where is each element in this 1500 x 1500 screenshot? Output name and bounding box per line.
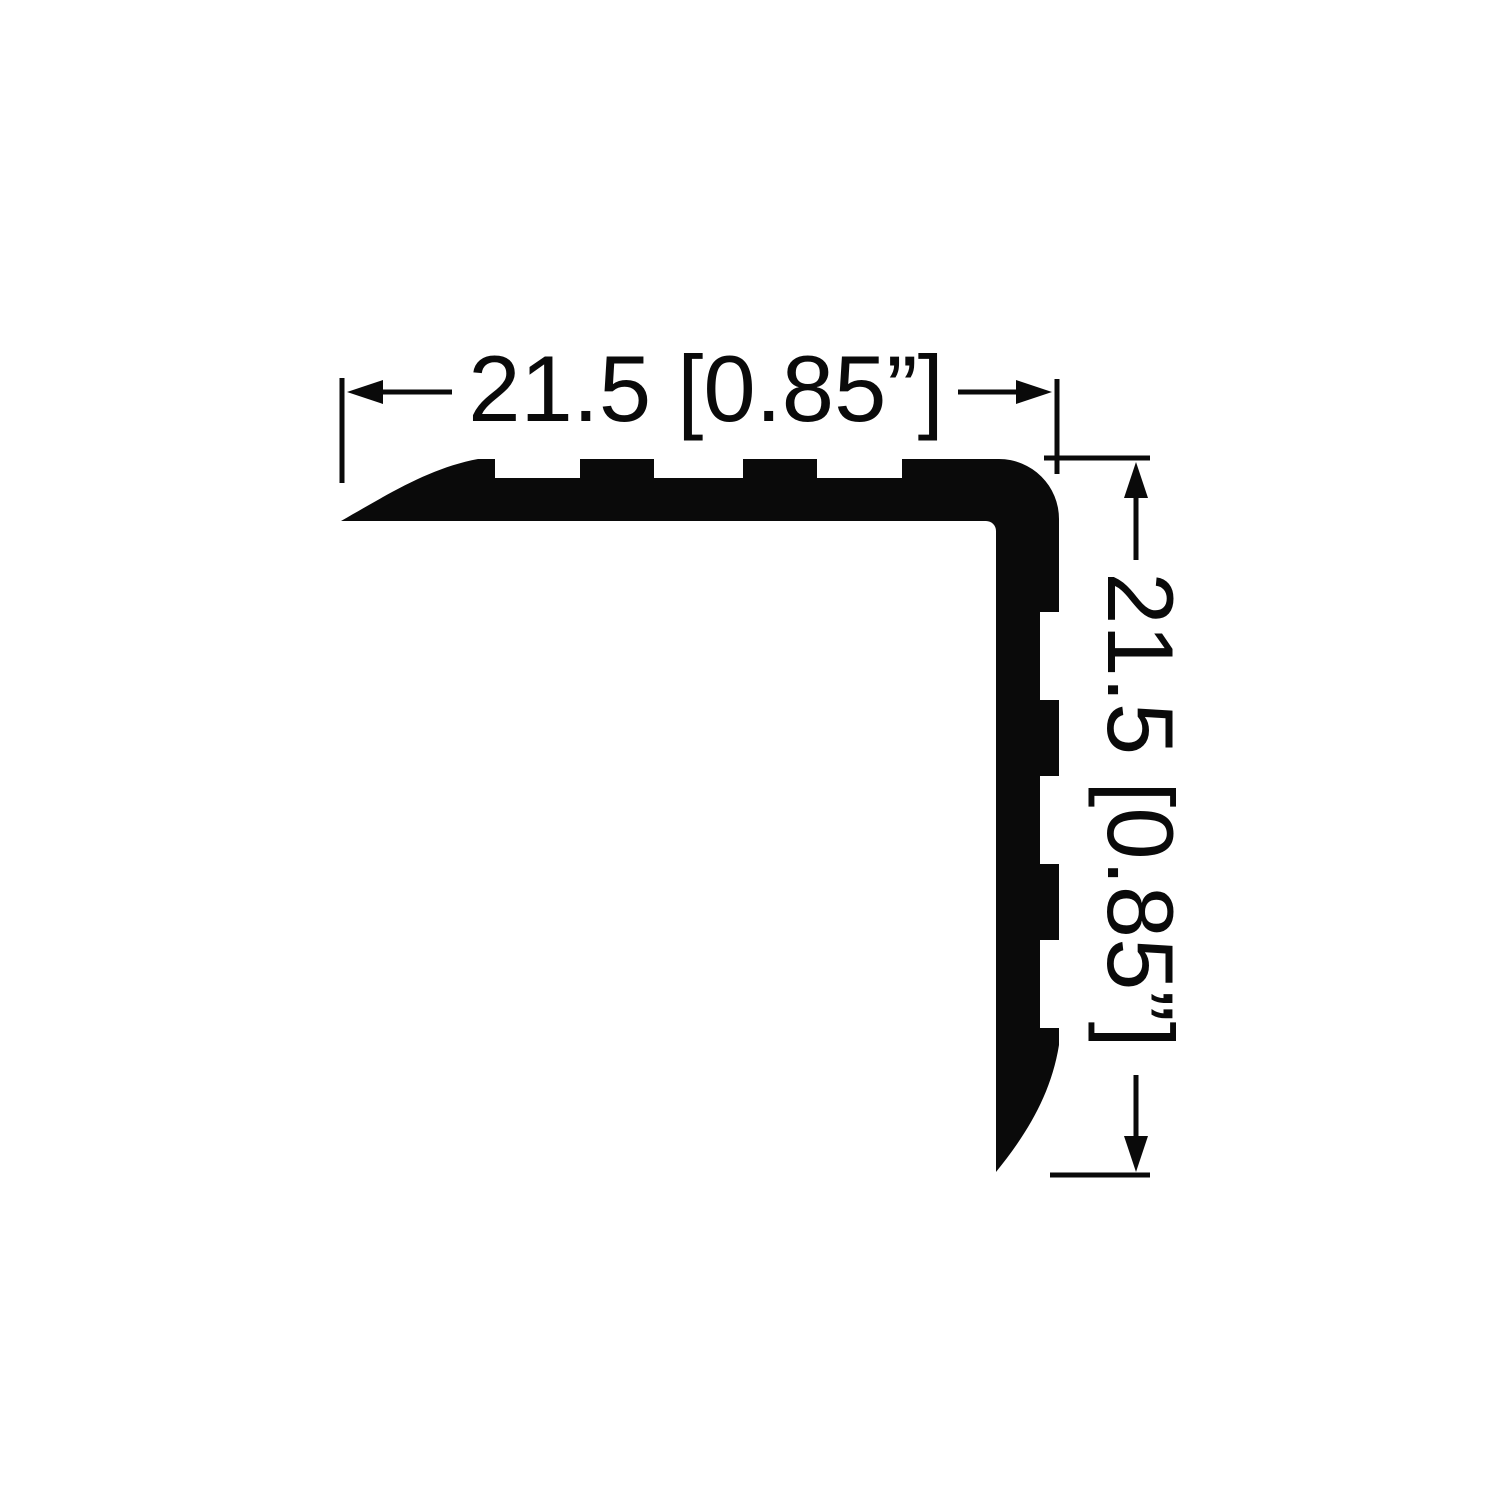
arrow-up-icon	[1124, 462, 1148, 498]
arrow-down-icon	[1124, 1136, 1148, 1172]
arrow-right-icon	[1016, 380, 1052, 404]
horizontal-dimension-label: 21.5 [0.85”]	[468, 342, 944, 436]
vertical-dimension-label: 21.5 [0.85”]	[1093, 572, 1187, 1048]
arrow-left-icon	[347, 380, 383, 404]
drawing-canvas: 21.5 [0.85”] 21.5 [0.85”]	[0, 0, 1500, 1500]
profile-cross-section	[341, 459, 1059, 1172]
technical-drawing	[0, 0, 1500, 1500]
